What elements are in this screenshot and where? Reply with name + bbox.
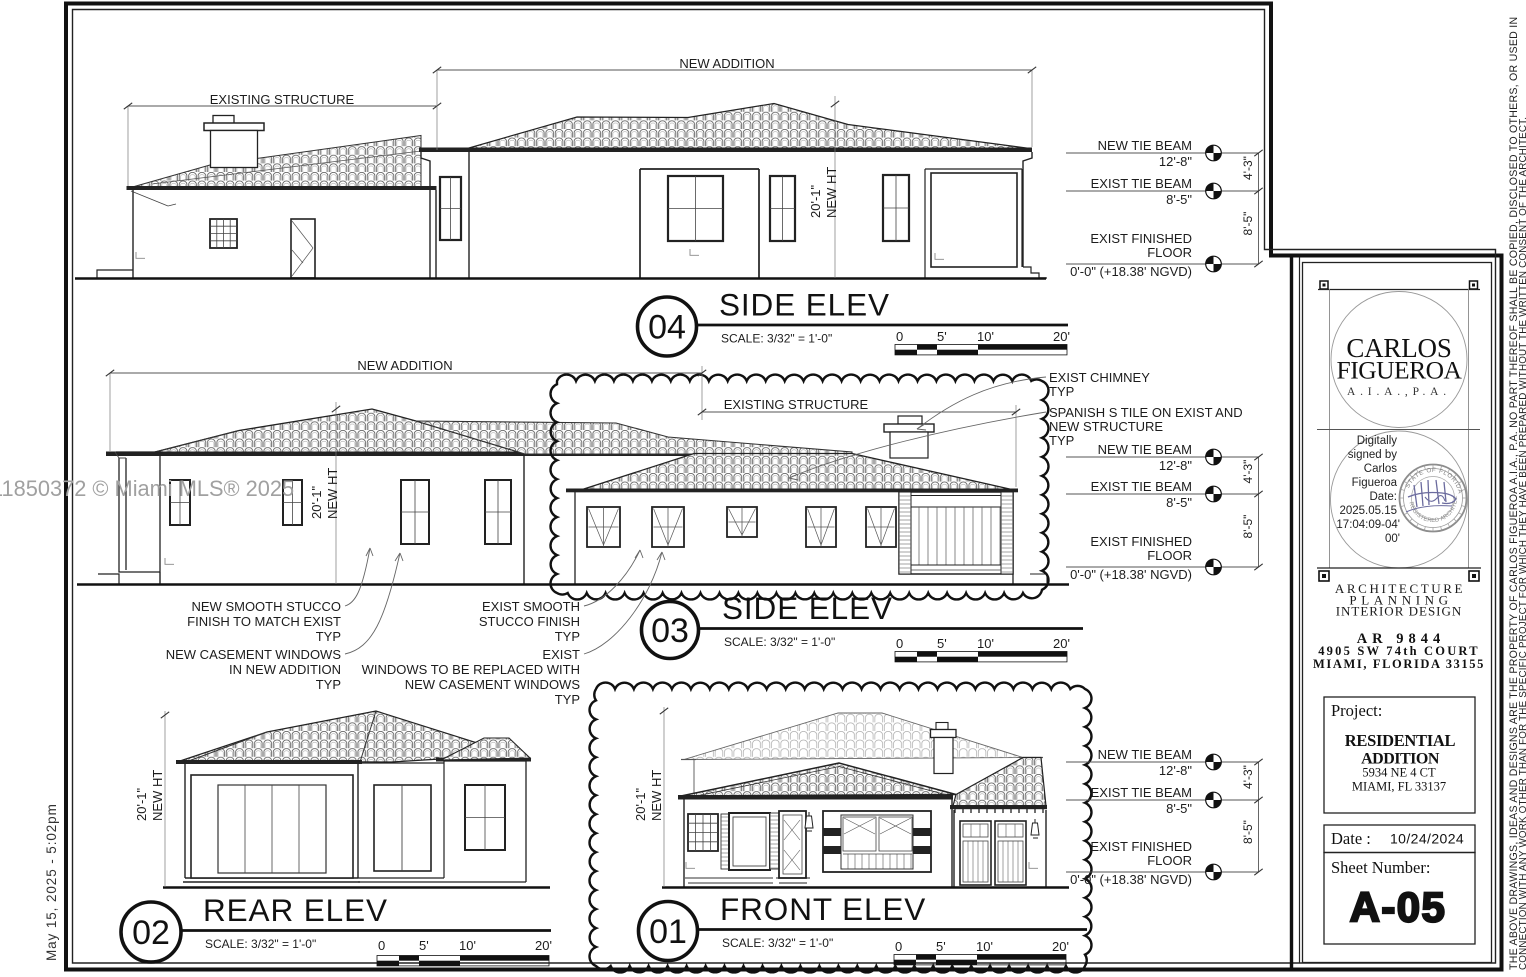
svg-text:12'-8": 12'-8" [1159,154,1193,169]
svg-text:4'-3": 4'-3" [1241,156,1255,180]
svg-text:SCALE: 3/32" = 1'-0": SCALE: 3/32" = 1'-0" [721,332,832,346]
svg-text:03: 03 [651,612,689,650]
svg-text:0'-0" (+18.38' NGVD): 0'-0" (+18.38' NGVD) [1070,567,1192,582]
svg-text:May 15, 2025 - 5:02pm: May 15, 2025 - 5:02pm [44,803,59,961]
svg-text:Sheet Number:: Sheet Number: [1331,858,1430,877]
svg-text:NEW TIE BEAM: NEW TIE BEAM [1098,747,1192,762]
svg-text:NEW SMOOTH STUCCO: NEW SMOOTH STUCCO [192,599,342,614]
svg-text:TYP: TYP [1049,433,1074,448]
svg-text:0'-0" (+18.38' NGVD): 0'-0" (+18.38' NGVD) [1070,872,1192,887]
svg-text:NEW TIE BEAM: NEW TIE BEAM [1098,442,1192,457]
svg-text:TYP: TYP [1049,384,1074,399]
svg-text:EXISTING STRUCTURE: EXISTING STRUCTURE [210,92,355,107]
svg-text:NEW TIE BEAM: NEW TIE BEAM [1098,138,1192,153]
svg-text:SPANISH S TILE ON EXIST AND: SPANISH S TILE ON EXIST AND [1049,405,1243,420]
svg-text:5': 5' [936,939,946,954]
svg-text:00': 00' [1385,533,1400,545]
svg-text:NEW STRUCTURE: NEW STRUCTURE [1049,419,1163,434]
svg-text:Digitally: Digitally [1357,435,1398,447]
svg-text:signed by: signed by [1348,449,1397,461]
svg-text:20'-1": 20'-1" [808,184,823,218]
svg-text:EXIST: EXIST [542,647,580,662]
svg-text:10': 10' [976,939,993,954]
svg-text:TYP: TYP [555,629,580,644]
svg-text:Date:: Date: [1370,491,1398,503]
svg-text:TYP: TYP [316,629,341,644]
svg-text:A.I.A.,P.A.: A.I.A.,P.A. [1347,386,1451,398]
svg-text:EXIST FINISHED: EXIST FINISHED [1090,534,1192,549]
svg-text:RESIDENTIAL: RESIDENTIAL [1345,731,1456,750]
svg-text:EXIST SMOOTH: EXIST SMOOTH [482,599,580,614]
svg-text:0: 0 [378,938,385,953]
svg-text:SIDE ELEV: SIDE ELEV [722,590,893,626]
svg-text:FLOOR: FLOOR [1147,853,1192,868]
svg-text:02: 02 [132,914,170,952]
svg-text:12'-8": 12'-8" [1159,763,1193,778]
svg-text:INTERIOR DESIGN: INTERIOR DESIGN [1336,604,1463,619]
svg-text:0'-0" (+18.38' NGVD): 0'-0" (+18.38' NGVD) [1070,264,1192,279]
svg-text:SCALE: 3/32" = 1'-0": SCALE: 3/32" = 1'-0" [724,635,835,649]
svg-text:NEW HT: NEW HT [824,167,839,218]
svg-text:11850372 © Miami MLS® 2025: 11850372 © Miami MLS® 2025 [0,476,294,501]
svg-text:EXIST FINISHED: EXIST FINISHED [1090,839,1192,854]
svg-text:0: 0 [896,636,903,651]
svg-text:REAR ELEV: REAR ELEV [203,892,388,928]
svg-text:EXIST FINISHED: EXIST FINISHED [1090,231,1192,246]
svg-text:8'-5": 8'-5" [1166,495,1192,510]
svg-text:SCALE: 3/32" = 1'-0": SCALE: 3/32" = 1'-0" [205,937,316,951]
svg-text:NEW ADDITION: NEW ADDITION [679,56,774,71]
svg-text:STUCCO FINISH: STUCCO FINISH [479,614,580,629]
svg-text:12'-8": 12'-8" [1159,458,1193,473]
svg-text:5': 5' [937,636,947,651]
svg-text:0: 0 [896,329,903,344]
svg-text:20': 20' [535,938,552,953]
svg-text:5': 5' [937,329,947,344]
svg-text:NEW ADDITION: NEW ADDITION [357,358,452,373]
svg-text:10': 10' [977,329,994,344]
svg-text:20'-1": 20'-1" [134,787,149,821]
svg-text:10': 10' [977,636,994,651]
svg-text:IN NEW ADDITION: IN NEW ADDITION [229,662,341,677]
svg-text:20'-1": 20'-1" [309,485,324,519]
svg-text:NEW HT: NEW HT [150,770,165,821]
svg-text:10': 10' [459,938,476,953]
svg-text:Carlos: Carlos [1364,463,1397,475]
svg-text:EXIST CHIMNEY: EXIST CHIMNEY [1049,370,1150,385]
svg-text:A-05: A-05 [1350,884,1447,931]
svg-text:04: 04 [648,309,686,347]
svg-text:20': 20' [1052,939,1069,954]
svg-text:2025.05.15: 2025.05.15 [1339,505,1397,517]
svg-text:FLOOR: FLOOR [1147,245,1192,260]
svg-text:5934 NE 4 CT: 5934 NE 4 CT [1362,766,1436,780]
svg-text:8'-5": 8'-5" [1241,820,1255,844]
svg-text:EXIST TIE BEAM: EXIST TIE BEAM [1091,479,1192,494]
svg-text:MIAMI, FLORIDA 33155: MIAMI, FLORIDA 33155 [1313,657,1485,671]
svg-text:MIAMI, FL 33137: MIAMI, FL 33137 [1352,780,1446,794]
svg-text:NEW HT: NEW HT [325,468,340,519]
svg-text:20'-1": 20'-1" [633,787,648,821]
svg-text:NEW HT: NEW HT [649,770,664,821]
svg-text:EXIST TIE BEAM: EXIST TIE BEAM [1091,176,1192,191]
svg-text:4905 SW 74th COURT: 4905 SW 74th COURT [1318,644,1480,658]
svg-text:8'-5": 8'-5" [1166,801,1192,816]
svg-text:FLOOR: FLOOR [1147,548,1192,563]
svg-text:4'-3": 4'-3" [1241,765,1255,789]
svg-text:20': 20' [1053,636,1070,651]
svg-text:17:04:09-04': 17:04:09-04' [1336,519,1400,531]
svg-text:FIGUEROA: FIGUEROA [1337,356,1463,385]
svg-text:01: 01 [649,913,687,951]
svg-text:NEW CASEMENT WINDOWS: NEW CASEMENT WINDOWS [166,647,342,662]
svg-text:CONNECTION WITH ANY WORK OTHER: CONNECTION WITH ANY WORK OTHER THAN FOR … [1518,117,1526,970]
svg-text:8'-5": 8'-5" [1166,192,1192,207]
svg-text:Figueroa: Figueroa [1352,477,1398,489]
svg-text:FRONT ELEV: FRONT ELEV [720,891,926,927]
svg-text:TYP: TYP [316,677,341,692]
svg-text:EXIST TIE BEAM: EXIST TIE BEAM [1091,785,1192,800]
svg-text:5': 5' [419,938,429,953]
svg-text:SIDE ELEV: SIDE ELEV [719,287,890,323]
svg-text:Project:: Project: [1331,701,1382,720]
svg-text:20': 20' [1053,329,1070,344]
svg-text:8'-5": 8'-5" [1241,212,1255,236]
svg-text:SCALE: 3/32" = 1'-0": SCALE: 3/32" = 1'-0" [722,936,833,950]
svg-text:WINDOWS TO BE REPLACED WITH: WINDOWS TO BE REPLACED WITH [362,662,580,677]
svg-text:FINISH TO MATCH EXIST: FINISH TO MATCH EXIST [187,614,341,629]
svg-text:10/24/2024: 10/24/2024 [1390,831,1464,847]
svg-text:Date :: Date : [1331,829,1371,848]
svg-text:TYP: TYP [555,692,580,707]
svg-text:0: 0 [895,939,902,954]
svg-text:NEW CASEMENT WINDOWS: NEW CASEMENT WINDOWS [405,677,581,692]
svg-text:8'-5": 8'-5" [1241,515,1255,539]
svg-text:EXISTING STRUCTURE: EXISTING STRUCTURE [724,397,869,412]
svg-text:4'-3": 4'-3" [1241,460,1255,484]
